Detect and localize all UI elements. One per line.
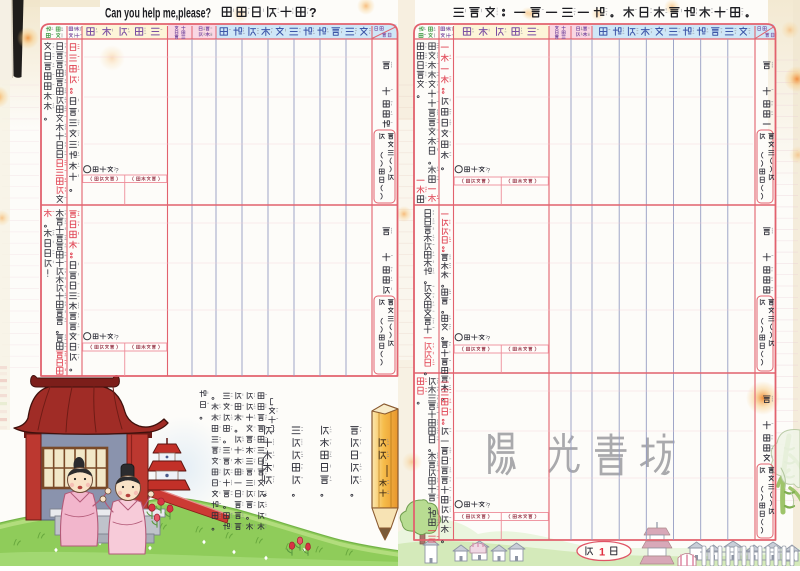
svg-text:1: 1 xyxy=(599,547,605,559)
svg-text:?: ? xyxy=(115,334,119,341)
svg-text:?: ? xyxy=(487,502,491,509)
svg-text:?: ? xyxy=(115,167,119,174)
svg-text:?: ? xyxy=(309,6,317,20)
svg-text:?: ? xyxy=(487,335,491,342)
svg-text:Can you help me,please?: Can you help me,please? xyxy=(105,5,211,21)
svg-text:?: ? xyxy=(487,167,491,174)
